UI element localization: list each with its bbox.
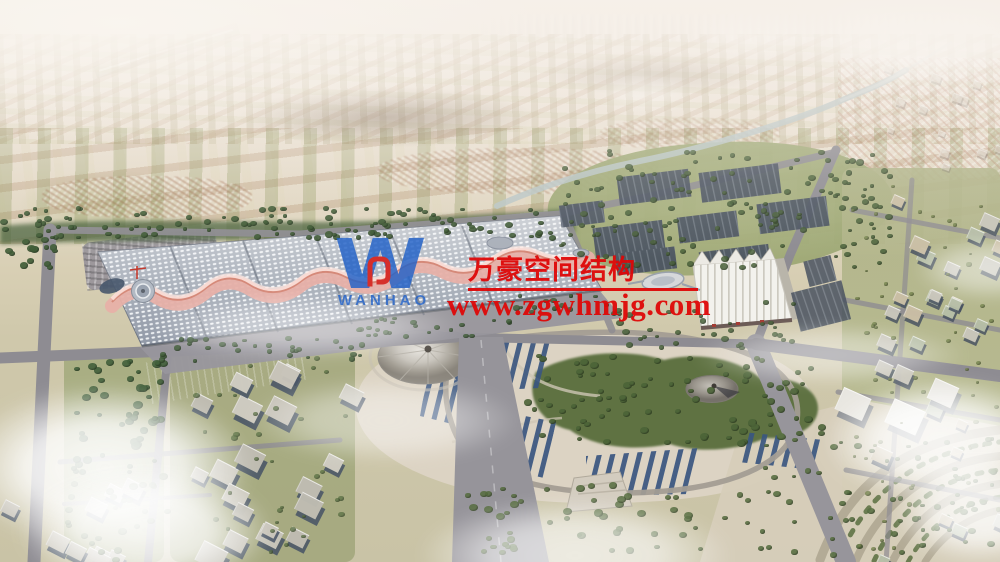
tree-dot <box>193 359 198 363</box>
company-logo: W WANHAO <box>330 238 440 316</box>
tree-dot <box>789 166 793 169</box>
tree-dot <box>544 487 550 492</box>
tree-dot <box>460 208 464 212</box>
tree-dot <box>870 184 875 188</box>
tree-dot <box>500 487 505 491</box>
tree-dot <box>338 512 345 517</box>
tree-dot <box>562 166 568 171</box>
tree-dot <box>675 330 681 335</box>
tree-dot <box>596 396 603 402</box>
cloud-wisp <box>915 238 1000 300</box>
aerial-architectural-rendering: W WANHAO 万豪空间结构 www.zgwhmjg.com <box>0 0 1000 562</box>
tree-dot <box>640 172 645 176</box>
tree-dot <box>692 396 700 402</box>
tree-dot <box>222 216 226 219</box>
tree-dot <box>667 236 673 241</box>
tree-dot <box>848 229 852 232</box>
tree-dot <box>204 219 211 225</box>
tree-dot <box>459 323 465 328</box>
logo-emblem-icon <box>364 254 394 288</box>
tree-dot <box>631 393 637 398</box>
tree-dot <box>605 372 610 376</box>
tree-dot <box>673 219 679 224</box>
tree-dot <box>739 265 746 271</box>
tree-dot <box>607 152 613 157</box>
tree-dot <box>271 226 277 231</box>
tree-dot <box>400 212 407 218</box>
tree-dot <box>764 444 769 448</box>
tree-dot <box>544 376 551 382</box>
tree-dot <box>790 388 799 395</box>
tree-dot <box>772 218 778 223</box>
tree-dot <box>335 498 340 502</box>
tree-dot <box>9 251 15 256</box>
tree-dot <box>707 387 715 394</box>
tree-dot <box>44 209 49 213</box>
tree-dot <box>588 483 595 489</box>
tree-dot <box>559 409 566 414</box>
tree-dot <box>134 213 139 217</box>
tree-dot <box>767 398 775 404</box>
tree-dot <box>834 255 838 258</box>
tree-dot <box>492 216 498 220</box>
tree-dot <box>749 206 754 210</box>
tree-dot <box>947 219 952 223</box>
tree-dot <box>302 515 307 519</box>
tree-dot <box>606 408 612 412</box>
tree-dot <box>275 232 279 235</box>
tree-dot <box>2 227 9 232</box>
tree-dot <box>46 229 51 233</box>
tree-dot <box>277 219 283 224</box>
tree-dot <box>440 221 445 225</box>
tree-dot <box>685 440 691 444</box>
tree-dot <box>598 202 605 208</box>
tree-dot <box>147 226 151 229</box>
tree-dot <box>650 197 658 203</box>
tree-dot <box>979 205 984 209</box>
tree-dot <box>175 221 182 227</box>
tree-dot <box>27 258 34 263</box>
tree-dot <box>231 216 239 222</box>
tree-dot <box>861 194 866 198</box>
tree-dot <box>882 520 887 524</box>
tree-dot <box>690 150 696 155</box>
tree-dot <box>306 235 312 240</box>
tree-dot <box>524 399 532 405</box>
tree-dot <box>794 158 800 163</box>
tree-dot <box>33 207 37 211</box>
tree-dot <box>76 206 82 211</box>
tree-dot <box>980 304 985 308</box>
tree-dot <box>270 529 275 533</box>
tree-dot <box>825 158 831 163</box>
tree-dot <box>0 219 8 225</box>
tree-dot <box>686 190 692 195</box>
tree-dot <box>649 180 655 185</box>
tree-dot <box>693 160 698 164</box>
tree-dot <box>655 335 659 338</box>
tree-dot <box>536 230 543 236</box>
tree-dot <box>758 546 765 551</box>
tree-dot <box>115 234 121 239</box>
tree-dot <box>769 225 775 230</box>
tree-dot <box>865 270 868 273</box>
tree-dot <box>538 398 544 403</box>
tree-dot <box>874 212 879 216</box>
tree-dot <box>609 354 617 360</box>
tree-dot <box>538 221 543 225</box>
tree-dot <box>909 292 914 296</box>
tree-dot <box>539 433 546 439</box>
tree-dot <box>887 226 892 230</box>
watermark-url: www.zgwhmjg.com <box>447 287 711 323</box>
tree-dot <box>880 539 884 542</box>
tree-dot <box>839 205 847 211</box>
tree-dot <box>590 362 599 369</box>
tree-dot <box>283 214 288 218</box>
tree-dot <box>589 188 593 191</box>
tree-dot <box>622 329 630 335</box>
tree-dot <box>989 319 994 323</box>
tree-dot <box>528 208 533 212</box>
tree-dot <box>268 206 275 212</box>
tree-dot <box>574 361 580 366</box>
tree-dot <box>469 227 476 233</box>
tree-dot <box>748 249 756 255</box>
tree-dot <box>186 215 192 220</box>
tree-dot <box>647 328 652 332</box>
tree-dot <box>747 179 752 183</box>
tree-dot <box>737 492 744 497</box>
tree-dot <box>584 422 591 428</box>
tree-dot <box>387 211 394 217</box>
tree-dot <box>842 196 848 201</box>
tree-dot <box>751 424 760 431</box>
tree-dot <box>647 228 653 233</box>
tree-dot <box>422 210 428 215</box>
tree-dot <box>794 416 799 420</box>
tree-dot <box>314 474 320 479</box>
tree-dot <box>444 228 450 233</box>
tree-dot <box>800 227 807 233</box>
tree-dot <box>871 547 876 551</box>
tree-dot <box>115 222 120 226</box>
tree-dot <box>623 411 630 417</box>
tree-dot <box>626 342 633 348</box>
tree-dot <box>965 368 969 371</box>
tree-dot <box>309 226 314 230</box>
tree-dot <box>207 228 212 232</box>
tree-dot <box>447 217 454 223</box>
tree-dot <box>609 482 617 489</box>
tree-dot <box>777 406 785 413</box>
tree-dot <box>577 437 583 441</box>
tree-dot <box>20 262 28 268</box>
logo-name: WANHAO <box>328 292 440 309</box>
tree-dot <box>877 261 882 265</box>
tree-dot <box>590 372 596 377</box>
tree-dot <box>613 229 617 233</box>
tree-dot <box>931 215 935 218</box>
tree-dot <box>730 153 735 157</box>
tree-dot <box>856 159 864 165</box>
tree-dot <box>887 234 893 238</box>
tree-dot <box>56 225 61 229</box>
tree-dot <box>976 361 981 365</box>
tree-dot <box>157 379 165 385</box>
tree-dot <box>576 369 584 375</box>
tree-dot <box>881 168 888 174</box>
tree-dot <box>576 485 585 492</box>
tree-dot <box>641 383 648 389</box>
tree-dot <box>745 498 751 503</box>
tree-dot <box>851 209 855 212</box>
tree-dot <box>76 236 80 239</box>
tree-dot <box>529 235 534 239</box>
tree-dot <box>47 265 53 270</box>
tree-dot <box>819 189 825 194</box>
tree-dot <box>796 431 803 436</box>
tree-dot <box>863 188 867 191</box>
tree-dot <box>849 517 856 522</box>
tree-dot <box>792 520 797 524</box>
tree-dot <box>862 199 870 205</box>
tree-dot <box>763 202 769 207</box>
tree-dot <box>864 236 870 241</box>
tree-dot <box>840 244 847 249</box>
tree-dot <box>105 232 111 237</box>
tree-dot <box>290 527 296 532</box>
tree-dot <box>151 232 158 237</box>
tree-dot <box>722 191 727 195</box>
tree-dot <box>625 210 632 216</box>
tree-dot <box>918 210 922 213</box>
tree-dot <box>129 227 134 231</box>
tree-dot <box>643 221 648 225</box>
tree-dot <box>612 224 617 228</box>
tree-dot <box>844 252 851 257</box>
tree-dot <box>762 394 768 399</box>
tree-dot <box>880 295 883 298</box>
tree-dot <box>18 214 22 217</box>
tree-dot <box>284 543 289 547</box>
tree-dot <box>320 470 325 474</box>
tree-dot <box>784 189 792 195</box>
tree-dot <box>98 378 105 384</box>
tree-dot <box>546 403 553 408</box>
cloud-wisp <box>598 72 693 110</box>
tree-dot <box>52 249 58 254</box>
tree-dot <box>675 409 681 414</box>
tree-dot <box>791 549 797 554</box>
tree-dot <box>44 216 52 222</box>
tree-dot <box>477 226 483 231</box>
tree-dot <box>684 171 691 176</box>
tree-dot <box>102 225 108 230</box>
tree-dot <box>796 215 802 220</box>
tree-dot <box>870 153 874 157</box>
tree-dot <box>269 214 274 218</box>
tree-dot <box>671 181 676 185</box>
tree-dot <box>282 207 287 211</box>
tree-dot <box>832 177 839 182</box>
tree-dot <box>632 231 640 237</box>
tree-dot <box>122 360 131 367</box>
tree-dot <box>761 208 768 213</box>
tree-dot <box>830 552 837 557</box>
tree-dot <box>290 232 295 236</box>
tree-dot <box>833 194 837 198</box>
tree-dot <box>763 466 767 469</box>
tree-dot <box>687 356 693 361</box>
tree-dot <box>828 516 832 520</box>
tree-dot <box>720 263 728 269</box>
tree-dot <box>738 210 744 215</box>
tree-dot <box>533 211 539 216</box>
tree-dot <box>277 508 284 513</box>
watermark-title: 万豪空间结构 <box>468 248 698 291</box>
tree-dot <box>487 230 493 235</box>
tree-dot <box>323 206 329 211</box>
tree-dot <box>594 187 600 192</box>
tree-dot <box>127 376 134 381</box>
tree-dot <box>311 366 316 370</box>
tree-dot <box>406 208 411 212</box>
tree-dot <box>579 398 585 403</box>
tree-dot <box>858 544 862 548</box>
tree-dot <box>250 221 257 227</box>
tree-dot <box>259 207 267 213</box>
tree-dot <box>22 239 30 245</box>
tree-dot <box>871 239 879 245</box>
tree-dot <box>183 227 187 230</box>
tree-dot <box>684 378 691 384</box>
tree-dot <box>744 156 751 162</box>
tree-dot <box>792 438 798 442</box>
tree-dot <box>485 491 492 497</box>
tree-dot <box>505 222 512 228</box>
tree-dot <box>275 521 279 524</box>
tree-dot <box>549 235 557 241</box>
tree-dot <box>580 211 587 217</box>
tree-dot <box>561 242 566 246</box>
tree-dot <box>729 417 737 424</box>
tree-dot <box>780 244 785 248</box>
tree-dot <box>598 389 604 394</box>
tree-dot <box>608 215 614 220</box>
tree-dot <box>804 416 813 423</box>
tree-dot <box>867 508 875 514</box>
tree-dot <box>872 227 876 230</box>
tree-dot <box>887 174 893 179</box>
tree-dot <box>715 226 721 231</box>
tree-dot <box>805 468 812 473</box>
tree-dot <box>569 220 574 224</box>
tree-dot <box>579 223 586 228</box>
tree-dot <box>301 535 306 539</box>
tree-dot <box>745 521 750 525</box>
tree-dot <box>758 223 763 227</box>
tree-dot <box>737 440 746 447</box>
tree-dot <box>44 245 49 249</box>
tree-dot <box>254 234 261 240</box>
tree-dot <box>591 225 595 228</box>
tree-dot <box>329 222 333 225</box>
tree-dot <box>106 359 114 366</box>
tree-dot <box>718 156 722 159</box>
tree-dot <box>41 237 49 244</box>
tree-dot <box>629 168 634 172</box>
tree-dot <box>248 364 253 368</box>
tree-dot <box>24 211 30 216</box>
tree-dot <box>739 428 747 435</box>
tree-dot <box>642 335 647 339</box>
tree-dot <box>580 359 588 366</box>
tree-dot <box>606 396 611 400</box>
tree-dot <box>574 180 579 184</box>
tree-dot <box>532 407 537 411</box>
cloud <box>695 8 825 60</box>
tree-dot <box>885 214 893 220</box>
tree-dot <box>869 222 874 226</box>
tree-dot <box>856 218 863 224</box>
tree-dot <box>688 389 694 394</box>
tree-dot <box>509 233 516 238</box>
tree-dot <box>721 256 729 262</box>
tree-dot <box>603 439 610 445</box>
tree-dot <box>846 182 850 185</box>
tree-dot <box>729 171 735 176</box>
tree-dot <box>751 263 757 268</box>
tree-dot <box>669 382 675 386</box>
tree-dot <box>792 475 796 478</box>
tree-dot <box>568 233 573 237</box>
tree-dot <box>68 225 74 230</box>
tree-dot <box>331 209 337 214</box>
tree-dot <box>640 427 649 434</box>
tree-dot <box>616 175 624 181</box>
tree-dot <box>891 185 895 188</box>
cloud <box>20 468 270 562</box>
tree-dot <box>830 537 835 541</box>
tree-dot <box>136 370 141 374</box>
tree-dot <box>674 188 679 192</box>
tree-dot <box>880 249 887 255</box>
tree-dot <box>953 223 957 226</box>
tree-dot <box>140 211 147 216</box>
tree-dot <box>325 215 333 221</box>
tree-dot <box>744 202 749 206</box>
tree-dot <box>773 491 781 497</box>
tree-dot <box>599 414 605 419</box>
tree-dot <box>629 381 635 386</box>
tree-dot <box>710 176 717 182</box>
tree-dot <box>662 224 668 229</box>
cloud-wisp <box>250 378 520 463</box>
tree-dot <box>852 265 857 269</box>
tree-dot <box>324 370 329 374</box>
tree-dot <box>465 493 470 497</box>
tree-dot <box>846 170 852 175</box>
tree-dot <box>648 377 653 381</box>
tree-dot <box>314 235 321 240</box>
tree-dot <box>659 345 665 349</box>
tree-dot <box>664 440 671 446</box>
tree-dot <box>684 150 690 155</box>
tree-dot <box>563 202 568 206</box>
tree-dot <box>778 434 786 440</box>
